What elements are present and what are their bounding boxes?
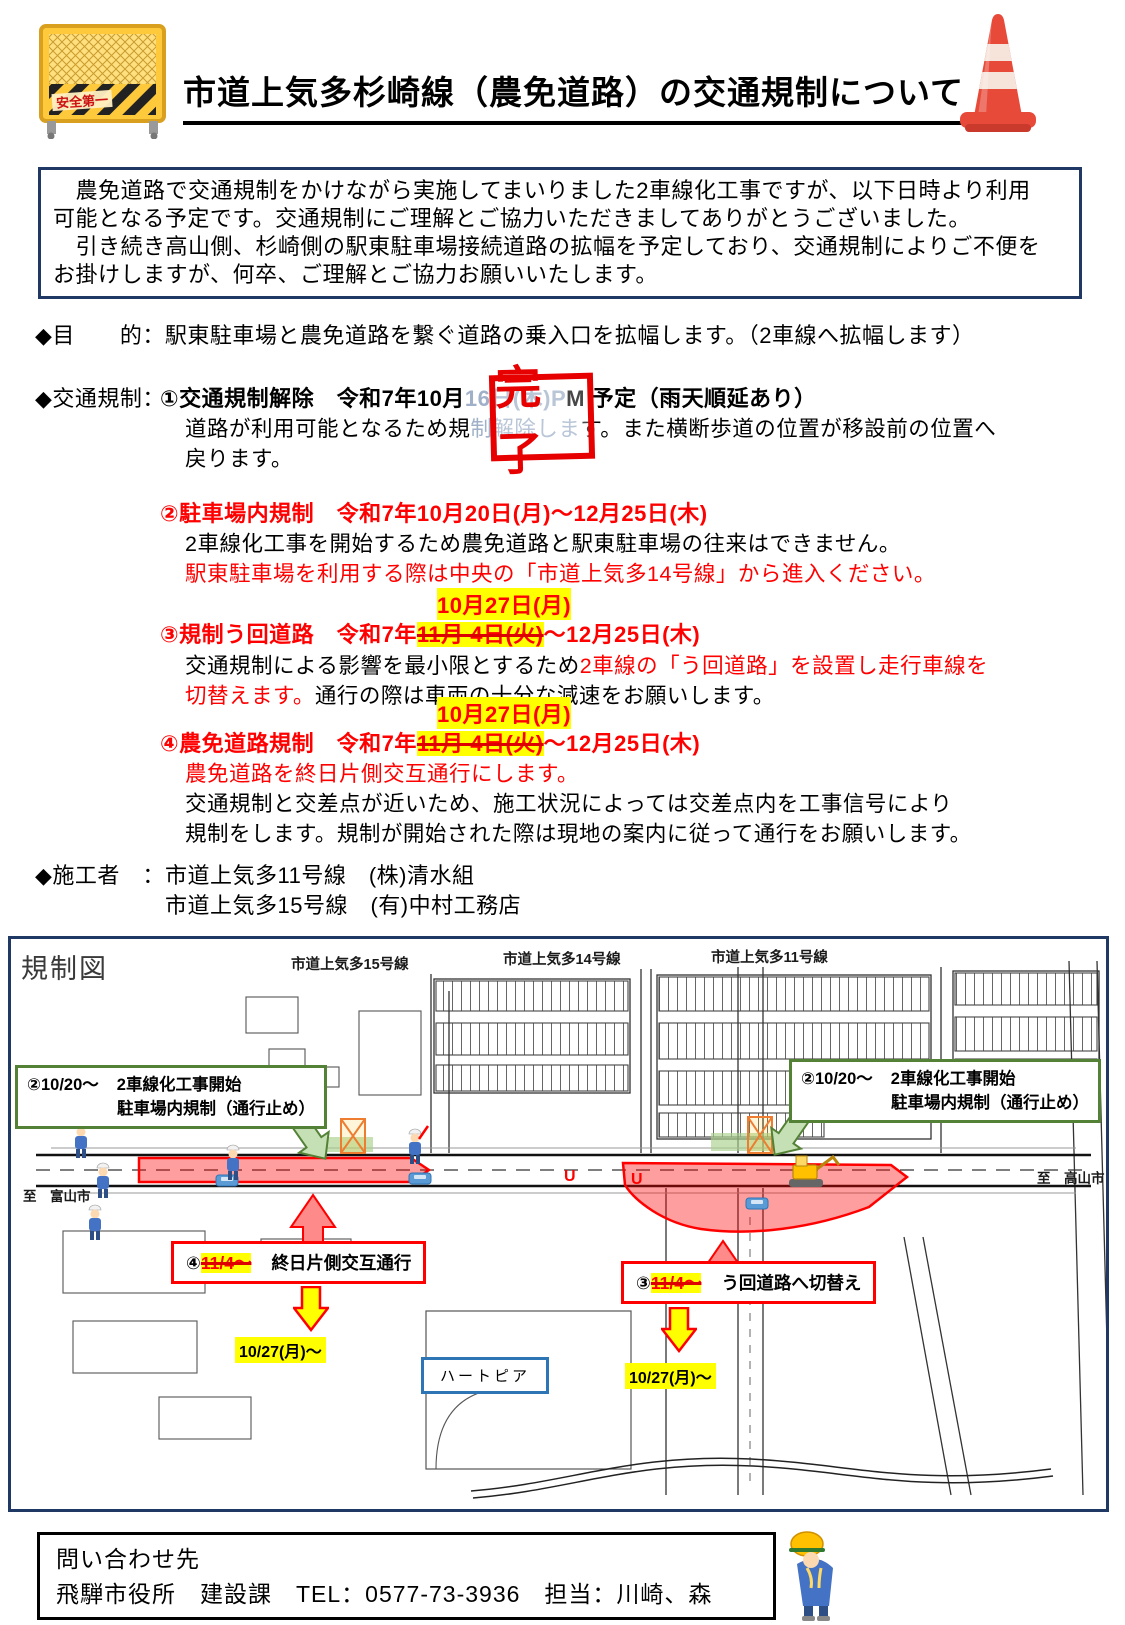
callout-text: 終日片側交互通行 (271, 1253, 411, 1273)
contact-title: 問い合わせ先 (56, 1542, 757, 1577)
u-turn-mark: U (564, 1168, 576, 1185)
regulation-item4-heading: ④農免道路規制 令和7年11月 4日(火)～12月25日(木) (160, 726, 700, 758)
road-label-11: 市道上気多11号線 (711, 946, 828, 967)
map-callout-parking-left: ②10/20～2車線化工事開始 駐車場内規制（通行止め） (15, 1065, 327, 1129)
callout-struck-date: 11/4～ (201, 1253, 252, 1273)
bowing-worker-icon (783, 1518, 849, 1622)
contractor-line2: 市道上気多15号線 (有)中村工務店 (165, 888, 521, 920)
contact-box: 問い合わせ先 飛騨市役所 建設課 TEL：0577-73-3936 担当：川崎、… (37, 1532, 776, 1620)
regulation-item2-body2: 駅東駐車場を利用する際は中央の「市道上気多14号線」から進入ください。 (185, 557, 936, 588)
regulation-map: U U 規制図 市道上気多15号線 市道上気多14号線 市道上気多11 (8, 936, 1109, 1512)
road-label-15: 市道上気多15号線 (291, 953, 409, 974)
item4-head-pre: ④農免道路規制 令和7年 (160, 731, 417, 756)
regulation-item4-body1: 農免道路を終日片側交互通行にします。 (185, 757, 579, 788)
item3-body2-red: 切替えます。 (185, 684, 315, 708)
down-arrow-icon (661, 1307, 697, 1353)
item3-head-post: ～12月25日(木) (544, 622, 701, 647)
item1-body1-pre: 道路が利用可能となるため規 (185, 417, 470, 441)
completed-stamp-text: 完了 (494, 350, 589, 484)
contractor-line1: 市道上気多11号線 (株)清水組 (165, 858, 475, 890)
item3-head-pre: ③規制う回道路 令和7年 (160, 622, 417, 647)
map-callout-alternating-traffic: ④11/4～終日片側交互通行 (171, 1241, 426, 1284)
purpose-line: ◆目 的：駅東駐車場と農免道路を繋ぐ道路の乗入口を拡幅します。（2車線へ拡幅しま… (35, 318, 974, 350)
heartpia-label: ハートピア (421, 1357, 549, 1394)
callout-date: ②10/20～ (801, 1070, 873, 1088)
callout-date: ②10/20～ (27, 1076, 99, 1094)
callout-text: 駐車場内規制（通行止め） (27, 1097, 315, 1121)
destination-left: 至 富山市 (23, 1185, 91, 1205)
map-callout-parking-right: ②10/20～2車線化工事開始 駐車場内規制（通行止め） (789, 1059, 1101, 1123)
item3-body1-black: 交通規制による影響を最小限とするため (185, 654, 580, 678)
callout-text: 2車線化工事開始 (117, 1076, 242, 1094)
item3-new-date: 10月27日(月) (437, 588, 571, 620)
regulation-item3-body1: 交通規制による影響を最小限とするため2車線の「う回道路」を設置し走行車線を (185, 649, 988, 680)
page-title: 市道上気多杉崎線（農免道路）の交通規制について (183, 66, 964, 125)
regulation-item4-body2: 交通規制と交差点が近いため、施工状況によっては交差点内を工事信号により (185, 787, 952, 818)
regulation-item4-body3: 規制をします。規制が開始された際は現地の案内に従って通行をお願いします。 (185, 817, 972, 848)
item1-head-post: M 予定（雨天順延あり） (566, 386, 816, 411)
traffic-worker-icon (409, 1129, 421, 1164)
intro-box: 農免道路で交通規制をかけながら実施してまいりました2車線化工事ですが、以下日時よ… (38, 167, 1082, 299)
purpose-text: 駅東駐車場と農免道路を繋ぐ道路の乗入口を拡幅します。（2車線へ拡幅します） (165, 323, 975, 348)
map-newdate-alt: 10/27(月)～ (235, 1337, 326, 1363)
item4-new-date: 10月27日(月) (437, 697, 571, 729)
intro-line: 農免道路で交通規制をかけながら実施してまいりました2車線化工事ですが、以下日時よ… (53, 177, 1067, 205)
item4-head-post: ～12月25日(木) (544, 731, 701, 756)
u-turn-mark: U (631, 1171, 643, 1188)
map-newdate-detour: 10/27(月)～ (625, 1363, 716, 1389)
contractor-label: ◆施工者 ： (35, 858, 165, 890)
destination-right: 至 高山市 (1037, 1167, 1105, 1187)
regulated-section-left (139, 1158, 429, 1182)
purpose-label: ◆目 的： (35, 323, 165, 348)
item1-body1-post: す。また横断歩道の位置が移設前の位置へ (580, 417, 996, 441)
item1-head-pre: ①交通規制解除 令和7年10月 (160, 386, 465, 411)
regulation-item2-body1: 2車線化工事を開始するため農免道路と駅東駐車場の往来はできません。 (185, 527, 901, 558)
callout-number: ③ (636, 1273, 651, 1293)
traffic-cone-icon (952, 8, 1044, 140)
item3-body1-red: 2車線の「う回道路」を設置し走行車線を (580, 654, 988, 678)
intro-line: お掛けしますが、何卒、ご理解とご協力お願いいたします。 (53, 261, 1067, 289)
down-arrow-icon (293, 1286, 329, 1332)
callout-number: ④ (186, 1253, 201, 1273)
map-drawing: U U (11, 939, 1106, 1509)
completed-stamp: 完了 (489, 373, 595, 462)
contact-details: 飛騨市役所 建設課 TEL：0577-73-3936 担当：川崎、森 (56, 1577, 757, 1612)
item4-head-struck: 11月 4日(火) (417, 731, 544, 756)
callout-struck-date: 11/4～ (651, 1273, 702, 1293)
callout-text: 駐車場内規制（通行止め） (801, 1091, 1089, 1115)
map-callout-detour: ③11/4～う回道路へ切替え (621, 1261, 876, 1304)
car-icon (409, 1173, 431, 1184)
car-icon (746, 1198, 768, 1209)
regulation-item2-heading: ②駐車場内規制 令和7年10月20日(月)～12月25日(木) (160, 496, 708, 528)
safety-barrier-icon: 安全第一 (35, 24, 170, 139)
regulation-item3-heading: ③規制う回道路 令和7年11月 4日(火)～12月25日(木) (160, 617, 700, 649)
intro-line: 可能となる予定です。交通規制にご理解とご協力いただきましてありがとうございました… (53, 205, 1067, 233)
callout-text: う回道路へ切替え (721, 1273, 861, 1293)
notice-page: 安全第一 市道上気多杉崎線（農免道路）の交通規制について 農免道路で交通規制をか… (0, 0, 1125, 1625)
callout-text: 2車線化工事開始 (891, 1070, 1016, 1088)
regulation-item1-body2: 戻ります。 (185, 442, 293, 473)
intro-line: 引き続き高山側、杉崎側の駅東駐車場接続道路の拡幅を予定しており、交通規制によりご… (53, 233, 1067, 261)
item3-head-struck: 11月 4日(火) (417, 622, 544, 647)
road-label-14: 市道上気多14号線 (503, 948, 621, 969)
map-title: 規制図 (21, 947, 108, 986)
regulation-label: ◆交通規制： (35, 381, 165, 413)
